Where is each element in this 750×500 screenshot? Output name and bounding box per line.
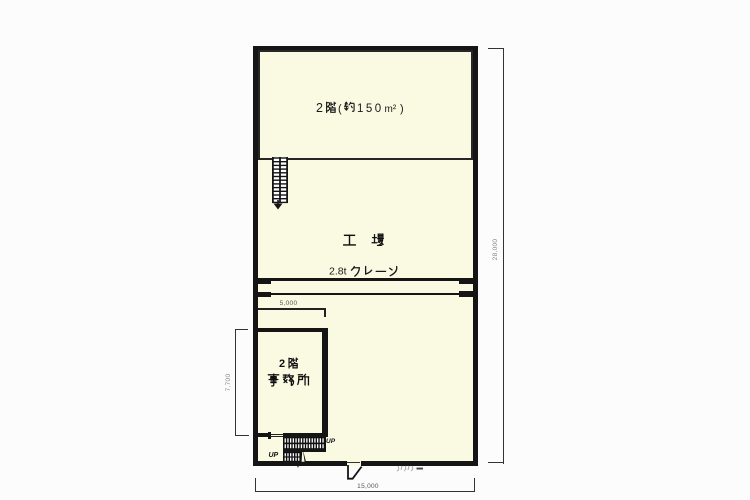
svg-text:2.8t: 2.8t <box>329 266 347 278</box>
svg-text:): ) <box>400 103 404 115</box>
svg-text:150: 150 <box>357 103 384 115</box>
svg-text:2: 2 <box>279 358 285 369</box>
svg-text:2: 2 <box>316 101 323 115</box>
svg-text:m²: m² <box>385 104 397 115</box>
svg-text:(: ( <box>338 103 342 115</box>
